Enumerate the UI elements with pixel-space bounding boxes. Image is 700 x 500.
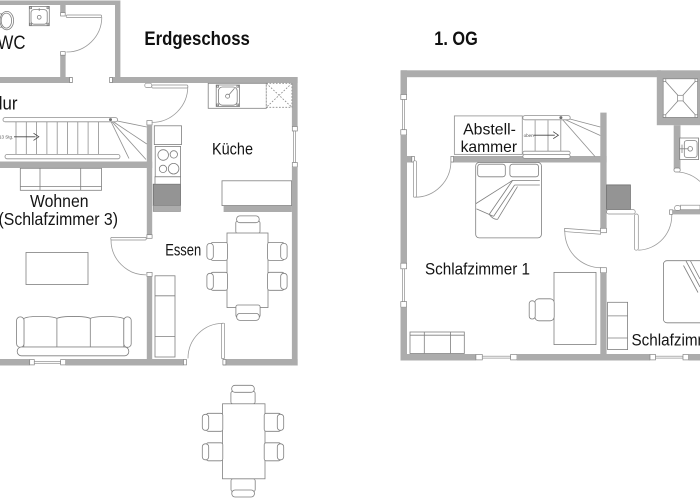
svg-text:Schlafzimmer 1: Schlafzimmer 1 [425,261,530,279]
svg-text:Essen: Essen [165,241,201,259]
svg-text:oben: oben [524,133,535,138]
svg-text:13 Stg.: 13 Stg. [0,135,13,140]
svg-text:Küche: Küche [212,140,253,158]
svg-text:WC: WC [0,33,26,54]
svg-text:(Schlafzimmer 3): (Schlafzimmer 3) [0,209,118,229]
svg-text:Erdgeschoss: Erdgeschoss [144,28,250,50]
svg-text:kammer: kammer [461,139,517,156]
svg-text:Flur: Flur [0,92,18,113]
svg-text:Abstell-: Abstell- [463,122,516,139]
svg-text:Schlafzimmer 2: Schlafzimmer 2 [632,331,700,349]
svg-text:1. OG: 1. OG [434,28,478,50]
svg-text:Wohnen: Wohnen [30,191,89,211]
